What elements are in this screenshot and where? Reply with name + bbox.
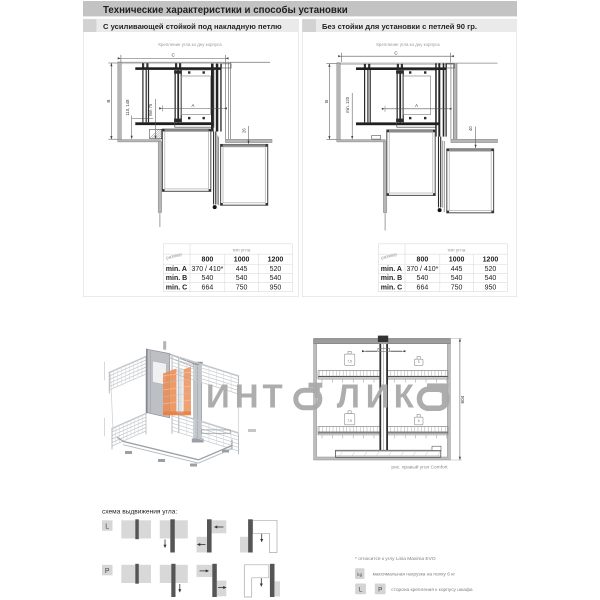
svg-text:664: 664 (417, 284, 429, 291)
svg-text:B: B (324, 100, 329, 103)
svg-text:kg: kg (357, 572, 362, 577)
svg-text:540: 540 (451, 275, 463, 282)
svg-text:min 75: min 75 (148, 103, 153, 116)
svg-text:7,5: 7,5 (347, 419, 352, 423)
svg-text:540: 540 (236, 275, 248, 282)
svg-text:min. C: min. C (166, 284, 187, 291)
svg-text:664: 664 (202, 284, 214, 291)
svg-text:Крепление угла ко дну корпуса: Крепление угла ко дну корпуса (158, 42, 222, 47)
svg-text:7,5: 7,5 (347, 360, 352, 364)
svg-text:540: 540 (270, 275, 282, 282)
svg-text:С усиливающей стойкой под накл: С усиливающей стойкой под накладную петл… (103, 22, 282, 31)
svg-text:950: 950 (270, 284, 282, 291)
svg-text:5: 5 (418, 419, 420, 423)
svg-text:540: 540 (202, 275, 214, 282)
svg-text:И: И (206, 378, 230, 415)
svg-text:800: 800 (202, 257, 214, 264)
svg-text:370 / 410*: 370 / 410* (406, 266, 438, 273)
svg-text:604: 604 (460, 395, 465, 403)
svg-text:445: 445 (451, 266, 463, 273)
svg-text:рис. правый угол Comfort: рис. правый угол Comfort (391, 463, 448, 470)
svg-text:min. 120: min. 120 (345, 96, 350, 113)
svg-text:540: 540 (485, 275, 497, 282)
svg-text:Технические характеристики и с: Технические характеристики и способы уст… (103, 5, 348, 16)
svg-text:40: 40 (468, 126, 473, 131)
svg-text:L: L (359, 587, 363, 594)
svg-text:1000: 1000 (449, 257, 465, 264)
svg-text:1000: 1000 (234, 257, 250, 264)
svg-text:min. B: min. B (166, 275, 187, 282)
svg-text:min. B: min. B (381, 275, 402, 282)
svg-text:5: 5 (418, 360, 420, 364)
svg-text:520: 520 (485, 266, 497, 273)
svg-text:520: 520 (270, 266, 282, 273)
svg-text:тип угла: тип угла (447, 249, 466, 254)
svg-text:min. C: min. C (381, 284, 402, 291)
svg-text:Л: Л (337, 378, 360, 415)
svg-text:540: 540 (417, 275, 429, 282)
svg-text:P: P (105, 568, 110, 575)
svg-text:P: P (378, 587, 382, 594)
svg-text:750: 750 (236, 284, 248, 291)
svg-text:26: 26 (241, 128, 246, 133)
svg-text:К: К (394, 378, 415, 415)
svg-text:L: L (105, 523, 109, 530)
svg-text:445: 445 (236, 266, 248, 273)
svg-text:Крепление угла ко дну корпуса: Крепление угла ко дну корпуса (376, 42, 440, 47)
svg-text:максимальная нагрузка на полку: максимальная нагрузка на полку 6 кг (373, 572, 456, 578)
svg-text:750: 750 (451, 284, 463, 291)
svg-text:И: И (366, 378, 390, 415)
svg-text:110, 148: 110, 148 (125, 99, 130, 116)
svg-text:min. A: min. A (381, 266, 402, 273)
svg-text:950: 950 (485, 284, 497, 291)
svg-text:тип угла: тип угла (232, 249, 251, 254)
svg-text:* относится к углу Linia Maxim: * относится к углу Linia Maxima EVO (355, 556, 436, 562)
svg-text:800: 800 (417, 257, 429, 264)
svg-text:Т: Т (263, 378, 283, 415)
svg-text:min. A: min. A (166, 266, 187, 273)
svg-text:B: B (106, 100, 111, 103)
svg-text:1200: 1200 (268, 257, 284, 264)
svg-text:Без стойки для установки с пет: Без стойки для установки с петлей 90 гр. (322, 22, 477, 31)
svg-text:1200: 1200 (483, 257, 499, 264)
svg-text:A: A (192, 103, 195, 108)
svg-text:Н: Н (235, 378, 259, 415)
svg-text:370 / 410*: 370 / 410* (191, 266, 223, 273)
svg-text:A: A (415, 103, 418, 108)
svg-text:схема выдвижения угла:: схема выдвижения угла: (102, 509, 177, 516)
svg-text:сторона крепления к корпусу шк: сторона крепления к корпусу шкафа (391, 587, 473, 593)
